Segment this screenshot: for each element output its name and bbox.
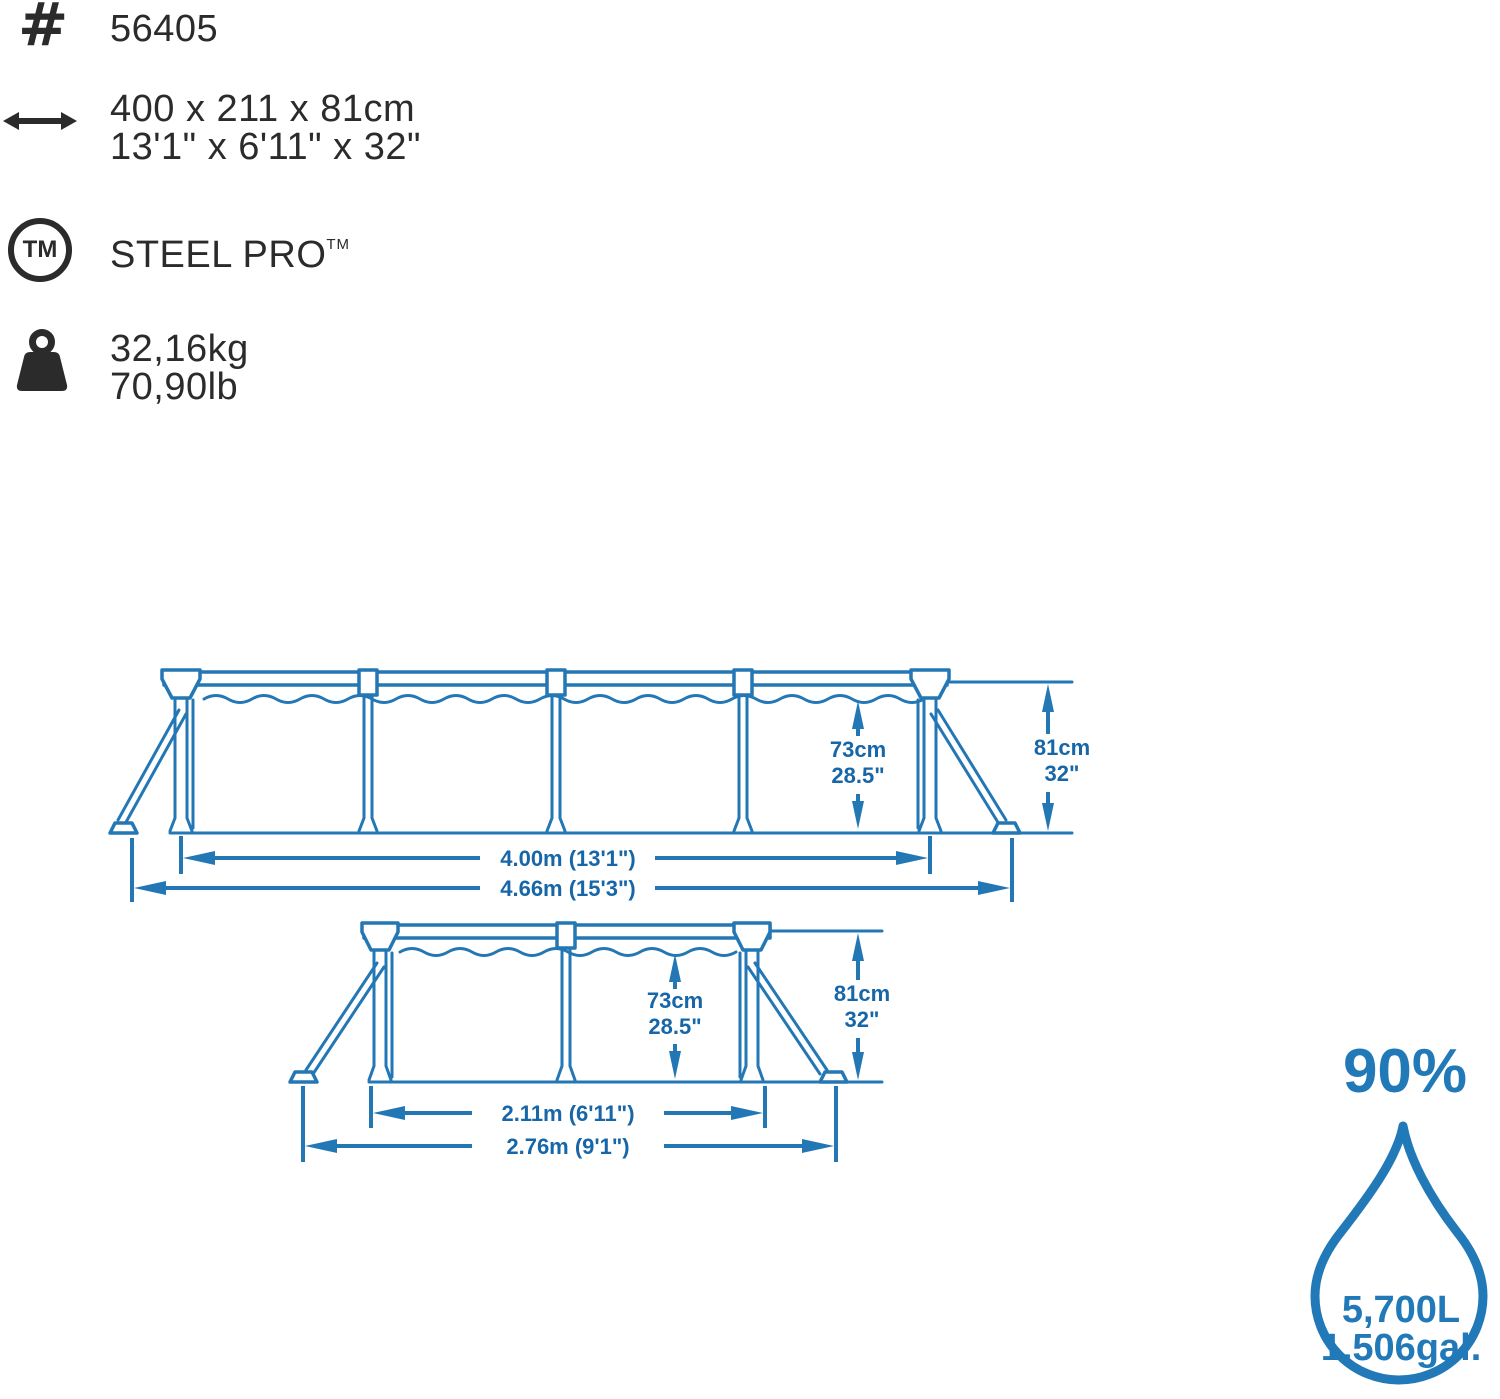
water-height-cm-label: 73cm bbox=[647, 988, 703, 1013]
water-height-in-label: 28.5" bbox=[831, 763, 884, 788]
pool-width-label: 2.11m (6'11") bbox=[501, 1101, 634, 1126]
volume-gallons-label: 1,506gal. bbox=[1321, 1327, 1482, 1369]
arrow-right bbox=[802, 1139, 834, 1153]
arrow-down bbox=[852, 1052, 864, 1080]
pool-side-view-short: 73cm 28.5" 81cm 32" 2.11m (6'11") bbox=[290, 923, 890, 1162]
arrow-right bbox=[978, 881, 1010, 895]
footprint-length-label: 4.66m (15'3") bbox=[500, 876, 636, 901]
arrow-left bbox=[134, 881, 166, 895]
dim-pool-length: 4.00m (13'1") bbox=[181, 836, 930, 874]
fill-level-label: 90% bbox=[1343, 1037, 1467, 1106]
arrow-down bbox=[1042, 803, 1054, 831]
frame-height-cm-label: 81cm bbox=[834, 981, 890, 1006]
footprint-width-label: 2.76m (9'1") bbox=[506, 1134, 629, 1159]
pool-length-label: 4.00m (13'1") bbox=[500, 846, 636, 871]
post-connectors bbox=[557, 923, 575, 948]
arrow-right bbox=[731, 1106, 763, 1120]
arrow-down bbox=[852, 801, 864, 829]
dim-frame-height-long: 81cm 32" bbox=[1034, 684, 1090, 831]
frame-height-in-label: 32" bbox=[1045, 761, 1080, 786]
volume-liters-label: 5,700L bbox=[1342, 1289, 1460, 1331]
pool-frame-lines bbox=[118, 682, 1072, 833]
pool-frame-lines bbox=[306, 931, 882, 1082]
frame-height-in-label: 32" bbox=[845, 1007, 880, 1032]
arrow-down bbox=[669, 1051, 681, 1079]
dim-water-height-long: 73cm 28.5" bbox=[830, 701, 886, 829]
arrow-right bbox=[896, 851, 928, 865]
dim-water-height-short: 73cm 28.5" bbox=[647, 954, 703, 1079]
arrow-left bbox=[305, 1139, 337, 1153]
dim-pool-width: 2.11m (6'11") bbox=[371, 1086, 765, 1128]
product-spec-sheet: # 56405 400 x 211 x 81cm 13'1" x 6'11" x… bbox=[0, 0, 1500, 1399]
dim-frame-height-short: 81cm 32" bbox=[834, 933, 890, 1080]
diagram-stage: 73cm 28.5" 81cm 32" 4.00m (13'1") bbox=[0, 0, 1500, 1399]
water-height-cm-label: 73cm bbox=[830, 737, 886, 762]
arrow-left bbox=[373, 1106, 405, 1120]
water-height-in-label: 28.5" bbox=[648, 1014, 701, 1039]
frame-height-cm-label: 81cm bbox=[1034, 735, 1090, 760]
pool-side-view-long: 73cm 28.5" 81cm 32" 4.00m (13'1") bbox=[110, 670, 1090, 902]
arrow-left bbox=[183, 851, 215, 865]
water-capacity: 90% 5,700L 1,506gal. bbox=[1315, 1037, 1483, 1380]
